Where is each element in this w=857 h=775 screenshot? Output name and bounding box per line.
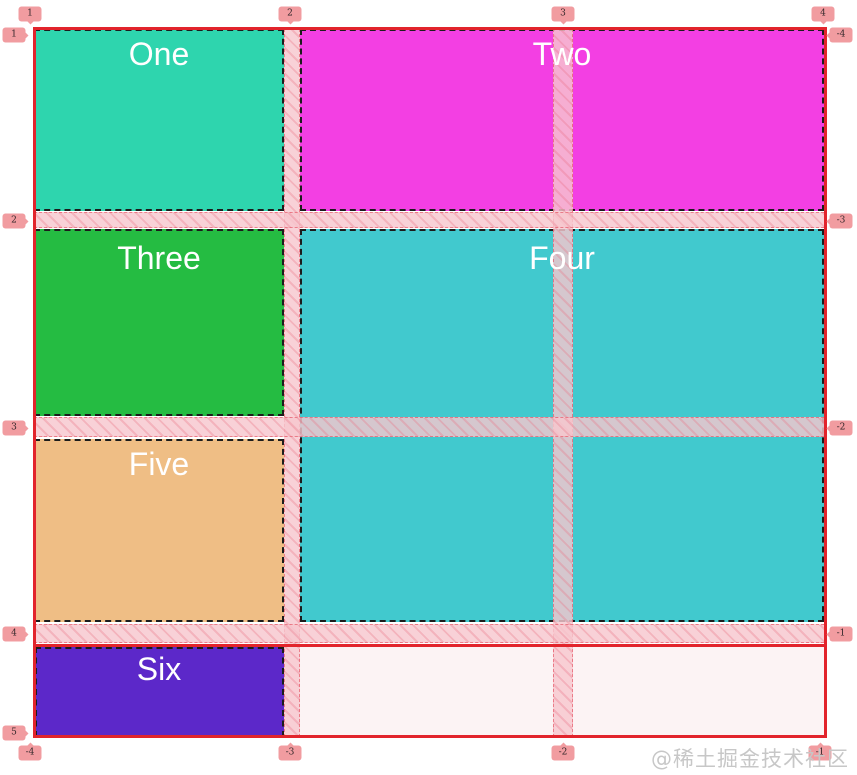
grid-item-five bbox=[34, 439, 284, 622]
row-gap-line-4 bbox=[34, 624, 824, 643]
line-badge-col-neg3: -3 bbox=[279, 746, 302, 761]
line-badge-col-1: 1 bbox=[19, 7, 42, 22]
line-badge-row-2: 2 bbox=[3, 214, 26, 229]
grid-item-six bbox=[35, 647, 284, 737]
row-gap-line-3 bbox=[34, 417, 824, 437]
line-badge-row-neg1: -1 bbox=[830, 627, 853, 642]
line-badge-row-4: 4 bbox=[3, 627, 26, 642]
line-badge-row-1: 1 bbox=[3, 28, 26, 43]
line-badge-col-2: 2 bbox=[279, 7, 302, 22]
line-badge-row-3: 3 bbox=[3, 421, 26, 436]
grid-inspector-page: { "grid_lines": { "top": ["1", "2", "3",… bbox=[0, 0, 857, 775]
line-badge-col-3: 3 bbox=[552, 7, 575, 22]
grid-item-three bbox=[34, 229, 284, 416]
line-badge-col-4: 4 bbox=[812, 7, 835, 22]
line-badge-row-5: 5 bbox=[3, 726, 26, 741]
row-gap-line-2 bbox=[34, 212, 824, 228]
line-badge-row-neg3: -3 bbox=[830, 214, 853, 229]
line-badge-row-neg2: -2 bbox=[830, 421, 853, 436]
line-badge-row-neg4: -4 bbox=[830, 28, 853, 43]
line-badge-col-neg2: -2 bbox=[552, 746, 575, 761]
juejin-watermark: @稀土掘金技术社区 bbox=[651, 743, 849, 773]
line-badge-col-neg4: -4 bbox=[19, 746, 42, 761]
grid-item-one bbox=[34, 29, 284, 211]
